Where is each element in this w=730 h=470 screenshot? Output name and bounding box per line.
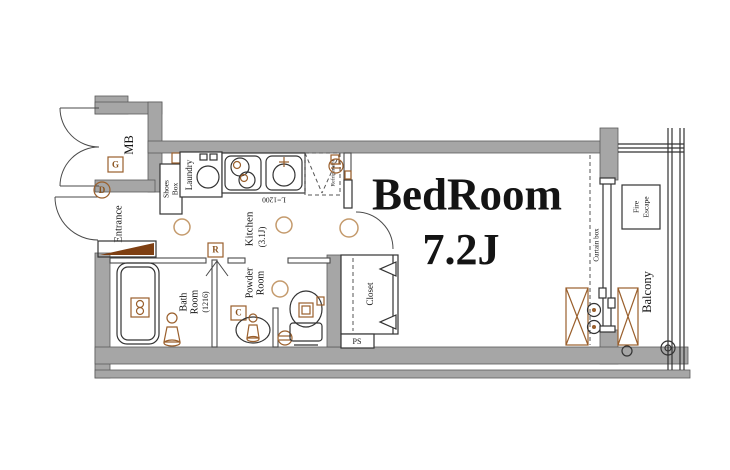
light-powder-icon	[272, 281, 288, 297]
entrance-label: Entrance	[113, 205, 124, 243]
window-frame-bottom	[600, 326, 615, 332]
fire-escape-label-1: Fire	[632, 200, 641, 213]
bedroom-label: BedRoom	[372, 169, 562, 219]
counter-length-label: L=1200	[262, 195, 286, 204]
closet-area: Closet PS	[341, 255, 398, 348]
window-handle-1	[599, 288, 606, 298]
wall-bottom	[95, 347, 688, 364]
wall-powder-closet	[327, 255, 341, 347]
toilet-seat-inner	[302, 306, 310, 314]
washbasin-icon	[236, 317, 270, 343]
pipe-space-label: PS	[353, 337, 362, 346]
toilet-tank-icon	[290, 323, 322, 341]
powder-label-2: Room	[255, 271, 266, 296]
toilet-seat-icon	[299, 303, 313, 317]
kitchen-area: L=1200 Kitchen (3.1J)	[222, 153, 305, 247]
curtain-box-label: Curtain box	[593, 228, 601, 262]
outlet-dot-2	[592, 325, 596, 329]
floor-plan: Entrance MB G D Shoes Box Laundry L=1200…	[0, 0, 730, 470]
window-frame-top	[600, 178, 615, 184]
kitchen-label: Kitchen	[244, 211, 256, 246]
light-entrance-icon	[174, 219, 190, 235]
gas-meter-label: G	[112, 160, 119, 170]
light-hall-icon	[340, 219, 358, 237]
light-kitchen-icon	[276, 217, 292, 233]
door-marker-label: D	[99, 185, 106, 195]
pillar-top-right	[600, 128, 618, 180]
partition-bath-top	[110, 258, 206, 263]
bathtub-inner	[121, 267, 155, 340]
balcony-window	[599, 178, 615, 332]
powder-room: Powder Room	[236, 267, 324, 345]
refrigerator-area: Refrigerator	[305, 153, 343, 195]
bedroom-door-panel	[344, 180, 352, 208]
powder-label-1: Powder	[244, 267, 255, 298]
balcony-area: Fire Escape Balcony	[618, 128, 684, 370]
washbasin-faucet-head	[249, 314, 257, 322]
c-marker-label: C	[235, 308, 242, 318]
walls	[95, 96, 690, 378]
bathtub-icon	[117, 263, 159, 344]
toilet-bowl-icon	[290, 291, 322, 327]
bath-faucet-knob-2	[137, 308, 144, 315]
wall-lower-band	[95, 370, 690, 378]
partition-bath-powder	[212, 260, 217, 347]
bath-shower-base-icon	[164, 340, 180, 346]
shoes-box-label-2: Box	[171, 183, 180, 196]
partition-washbasin	[273, 308, 278, 347]
mb-label: MB	[122, 135, 136, 154]
shoes-box: Shoes Box	[160, 164, 182, 214]
bedroom-area: BedRoom 7.2J Curtain box	[372, 155, 601, 345]
bath-room: Bath Room (1216)	[117, 263, 210, 346]
outlet-dot-1	[592, 308, 596, 312]
fire-escape-label-2: Escape	[642, 196, 651, 218]
entrance-area: Entrance	[98, 205, 156, 257]
mb-door-arc-top	[60, 108, 99, 147]
floor-plan-drawing: Entrance MB G D Shoes Box Laundry L=1200…	[0, 0, 730, 470]
closet-label: Closet	[365, 282, 375, 306]
bath-label-2: Room	[189, 290, 200, 315]
washbasin-faucet-base	[247, 337, 259, 342]
shoes-box-label-1: Shoes	[162, 180, 171, 198]
bath-faucet-knob-1	[137, 301, 144, 308]
bath-label-1: Bath	[178, 293, 189, 312]
wall-top	[148, 141, 602, 153]
laundry-area: Laundry	[172, 152, 222, 197]
kitchen-size-label: (3.1J)	[257, 227, 267, 248]
balcony-label: Balcony	[640, 270, 654, 312]
entrance-door-arc	[55, 197, 98, 240]
partition-powder-top-left	[228, 258, 245, 263]
refrigerator-diag-1	[305, 153, 322, 193]
bedroom-size-label: 7.2J	[423, 225, 500, 274]
kitchen-counter	[222, 153, 305, 193]
mb-door-arc-bottom	[60, 147, 99, 186]
window-handle-2	[608, 298, 615, 308]
bath-size-label: (1216)	[201, 291, 210, 313]
laundry-label: Laundry	[184, 159, 194, 190]
bath-shower-head-icon	[167, 313, 177, 323]
remote-marker-label: R	[212, 245, 219, 255]
partition-powder-top-right	[288, 258, 330, 263]
